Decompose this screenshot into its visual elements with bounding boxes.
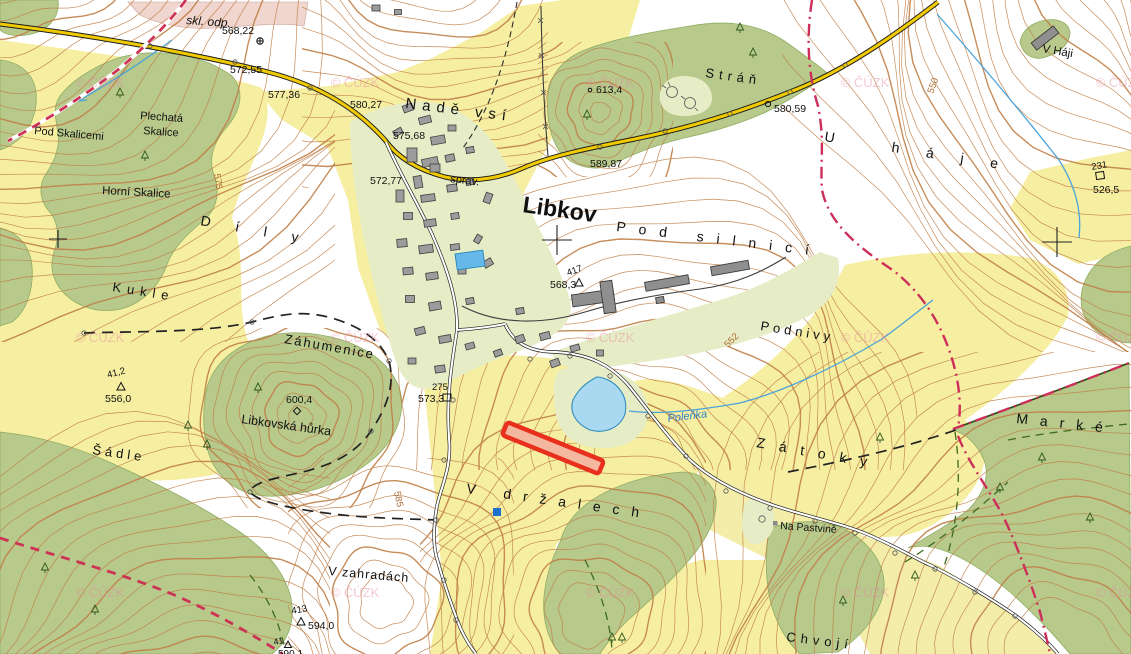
blue-parcel-marker bbox=[493, 508, 501, 516]
building bbox=[419, 244, 434, 254]
building bbox=[395, 10, 402, 15]
building bbox=[406, 296, 415, 303]
pastvina-marker-icon bbox=[773, 521, 778, 526]
building bbox=[396, 190, 404, 202]
cuzk-watermark: © ČÚZK bbox=[331, 585, 380, 600]
cuzk-watermark: © ČÚZK bbox=[1096, 75, 1131, 90]
building bbox=[413, 175, 423, 188]
elev-594-0: 594,0 bbox=[308, 620, 334, 632]
cuzk-watermark: © ČÚZK bbox=[586, 75, 635, 90]
elev-580-59: 580,59 bbox=[774, 103, 806, 115]
elev-580-27: 580,27 bbox=[350, 99, 382, 111]
building bbox=[466, 297, 475, 304]
cuzk-watermark: © ČÚZK bbox=[76, 585, 125, 600]
cuzk-watermark: © ČÚZK bbox=[586, 585, 635, 600]
landcover-fills bbox=[0, 0, 1131, 654]
contour-575: 575 bbox=[211, 173, 224, 190]
elev-573-3: 573,3 bbox=[418, 393, 444, 405]
elev-589-87: 589,87 bbox=[590, 158, 622, 170]
label-skalice: Skalice bbox=[143, 125, 179, 139]
cuzk-watermark: © ČÚZK bbox=[1096, 585, 1131, 600]
building bbox=[438, 335, 451, 344]
elev-572-55: 572,55 bbox=[230, 64, 262, 76]
farm-building bbox=[656, 296, 665, 303]
cuzk-watermark: © ČÚZK bbox=[586, 330, 635, 345]
cuzk-watermark: © ČÚZK bbox=[331, 330, 380, 345]
building bbox=[430, 164, 440, 172]
building bbox=[424, 219, 437, 228]
building bbox=[408, 358, 416, 364]
building bbox=[421, 194, 436, 203]
building bbox=[516, 307, 525, 314]
building bbox=[466, 146, 475, 153]
elev-577-36: 577,36 bbox=[268, 89, 300, 101]
elev-575-68: 575,68 bbox=[393, 130, 425, 142]
building bbox=[407, 148, 417, 162]
elev-41: 41 bbox=[273, 635, 285, 647]
elev-590-1: 590,1 bbox=[278, 649, 303, 654]
cuzk-watermark: © ČÚZK bbox=[841, 75, 890, 90]
elev-556-0: 556,0 bbox=[105, 393, 131, 405]
building bbox=[445, 154, 455, 163]
building bbox=[435, 365, 446, 373]
elev-526-5: 526,5 bbox=[1093, 184, 1119, 196]
elev-600-4: 600,4 bbox=[286, 394, 312, 406]
cuzk-watermark: © ČÚZK bbox=[841, 330, 890, 345]
building bbox=[397, 239, 408, 248]
building bbox=[450, 243, 460, 250]
elev-568-22: 568,22 bbox=[222, 25, 254, 37]
swimming-pool bbox=[455, 250, 485, 270]
building bbox=[404, 213, 413, 220]
building bbox=[448, 125, 456, 131]
cuzk-watermark: © ČÚZK bbox=[331, 75, 380, 90]
building bbox=[428, 301, 441, 311]
building bbox=[451, 212, 460, 219]
building bbox=[426, 272, 439, 281]
elev-572-77: 572,77 bbox=[370, 175, 402, 187]
building bbox=[403, 267, 414, 275]
cuzk-watermark: © ČÚZK bbox=[76, 330, 125, 345]
cuzk-watermark: © ČÚZK bbox=[76, 75, 125, 90]
elev-275: 275 bbox=[432, 382, 448, 393]
cuzk-watermark: © ČÚZK bbox=[1096, 330, 1131, 345]
building bbox=[597, 350, 604, 356]
elev-568-3: 568,3 bbox=[550, 279, 576, 291]
topo-map-canvas[interactable]: Libkov Nadě vsí Pod silnicí Stráň U háje… bbox=[0, 0, 1131, 654]
map-svg: Libkov Nadě vsí Pod silnicí Stráň U háje… bbox=[0, 0, 1131, 654]
cuzk-watermark: © ČÚZK bbox=[841, 585, 890, 600]
building bbox=[372, 5, 380, 11]
